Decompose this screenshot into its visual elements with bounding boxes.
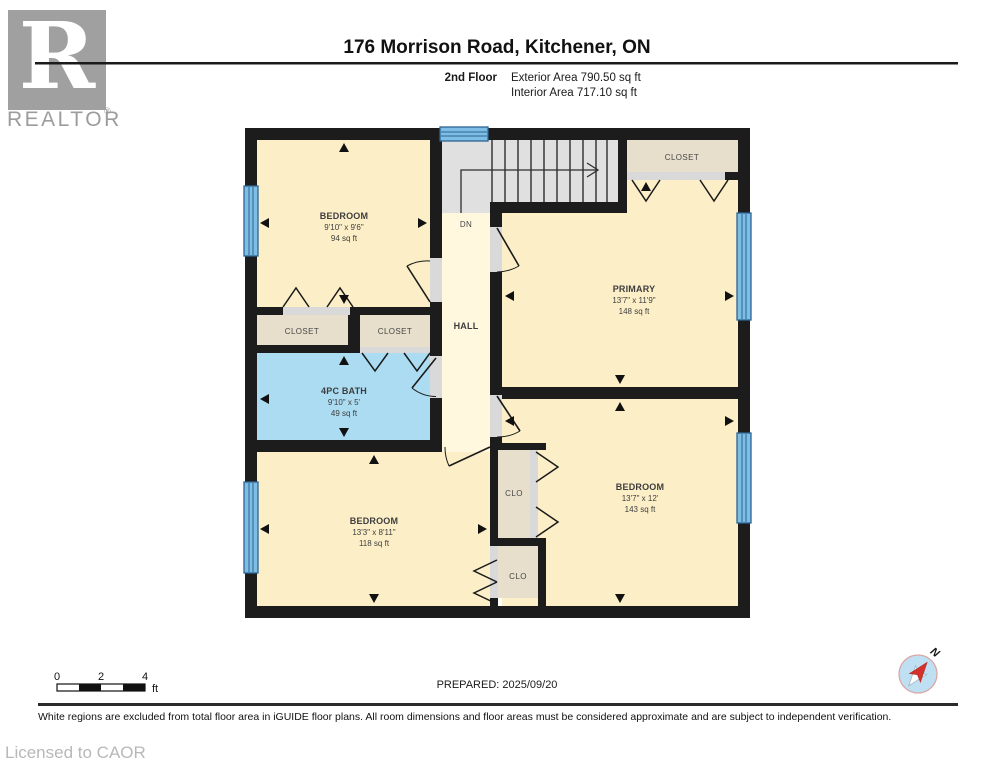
label-bedroom-bl-dims: 13'3" x 8'11" (352, 528, 395, 537)
wall-clo-right (538, 546, 546, 618)
label-bedroom-bl-area: 118 sq ft (359, 539, 390, 548)
window-bedroom-br (737, 433, 751, 523)
footer-divider-line (38, 703, 958, 706)
wall-bath-bedroom (245, 440, 442, 452)
realtor-logo-letter: R (19, 2, 96, 110)
wall-stairs-closet (618, 128, 627, 213)
wall-outer-right (738, 128, 750, 618)
window-bedroom-tl (244, 186, 258, 256)
label-bedroom-tl-area: 94 sq ft (331, 234, 358, 243)
disclaimer-text: White regions are excluded from total fl… (38, 711, 891, 723)
label-bedroom-br-name: BEDROOM (616, 482, 664, 492)
scale-unit: ft (152, 683, 158, 695)
label-clo-top: CLO (505, 489, 523, 498)
label-bedroom-br-area: 143 sq ft (625, 505, 656, 514)
stairs-landing (442, 140, 490, 213)
jamb-bedroom-tl (430, 258, 442, 302)
label-bedroom-bl-name: BEDROOM (350, 516, 398, 526)
scale-bar-seg2 (123, 684, 145, 691)
label-bedroom-tl-dims: 9'10" x 9'6" (324, 223, 364, 232)
floor-plan-canvas: R REALTOR ® 176 Morrison Road, Kitchener… (0, 0, 995, 768)
header-divider-line (35, 62, 958, 65)
label-bath-dims: 9'10" x 5' (328, 398, 361, 407)
wall-stairs-bottom (490, 202, 627, 213)
label-bedroom-br-dims: 13'7" x 12' (622, 494, 659, 503)
label-closet-tr: CLOSET (665, 153, 699, 162)
jamb-clo-bottom (490, 546, 498, 598)
footer: White regions are excluded from total fl… (5, 703, 958, 762)
wall-clo-top-cap (490, 443, 546, 450)
floor-label: 2nd Floor (445, 72, 498, 84)
label-clo-bottom: CLO (509, 572, 527, 581)
page-title: 176 Morrison Road, Kitchener, ON (343, 37, 650, 58)
wall-outer-top (245, 128, 750, 140)
jamb-closet-left (283, 307, 350, 315)
label-primary-dims: 13'7" x 11'9" (612, 296, 655, 305)
wall-clo-mid (490, 538, 546, 546)
wall-clo-left (490, 450, 498, 538)
label-bath-name: 4PC BATH (321, 386, 367, 396)
label-bedroom-tl-name: BEDROOM (320, 211, 368, 221)
label-hall: HALL (454, 321, 479, 331)
jamb-closet-mid (360, 347, 430, 353)
scale-tick-4: 4 (142, 671, 148, 683)
wall-primary-bedroom (496, 387, 750, 399)
window-primary (737, 213, 751, 320)
compass-north-label: N (928, 646, 942, 661)
jamb-clo-top (530, 450, 538, 538)
floor-plan: BEDROOM 9'10" x 9'6" 94 sq ft PRIMARY 13… (244, 127, 751, 618)
room-hall (442, 213, 490, 452)
window-stairs-top (440, 127, 488, 141)
license-text: Licensed to CAOR (5, 743, 146, 762)
registered-trademark-icon: ® (104, 106, 111, 116)
floor-plan-page: R REALTOR ® 176 Morrison Road, Kitchener… (0, 0, 995, 768)
room-bath (257, 353, 430, 440)
wall-closet-bath (257, 345, 360, 353)
label-primary-name: PRIMARY (613, 284, 656, 294)
window-bedroom-bl (244, 482, 258, 573)
label-closet-left: CLOSET (285, 327, 319, 336)
prepared-date: PREPARED: 2025/09/20 (437, 679, 558, 691)
label-stairs-down: DN (460, 220, 472, 229)
jamb-closet-tr (627, 172, 725, 180)
compass: N (899, 644, 944, 693)
wall-outer-bottom (245, 606, 750, 618)
header: R REALTOR ® 176 Morrison Road, Kitchener… (7, 2, 958, 131)
exterior-area-label: Exterior Area 790.50 sq ft (511, 72, 642, 84)
label-primary-area: 148 sq ft (619, 307, 650, 316)
interior-area-label: Interior Area 717.10 sq ft (511, 87, 638, 99)
scale-tick-0: 0 (54, 671, 60, 683)
wall-closet-tr-stub (725, 172, 738, 180)
scale-bar-seg1 (79, 684, 101, 691)
scale-tick-2: 2 (98, 671, 104, 683)
label-bath-area: 49 sq ft (331, 409, 358, 418)
label-closet-mid: CLOSET (378, 327, 412, 336)
scale-bar: 0 2 4 ft (54, 671, 158, 695)
